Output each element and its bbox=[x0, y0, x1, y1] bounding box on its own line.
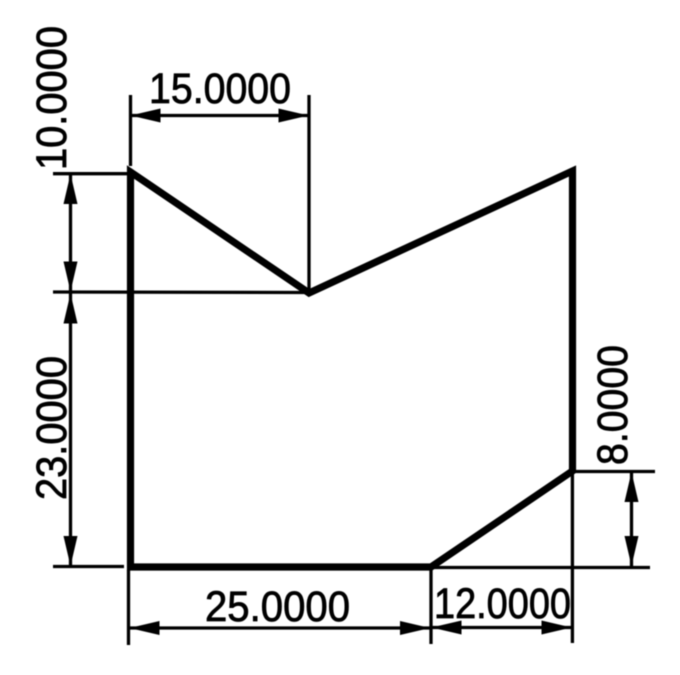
svg-text:15.0000: 15.0000 bbox=[149, 65, 291, 113]
svg-text:25.0000: 25.0000 bbox=[205, 583, 350, 631]
svg-text:12.0000: 12.0000 bbox=[434, 580, 571, 628]
svg-text:8.0000: 8.0000 bbox=[589, 345, 637, 465]
svg-text:23.0000: 23.0000 bbox=[28, 356, 76, 500]
svg-text:10.0000: 10.0000 bbox=[28, 26, 76, 170]
